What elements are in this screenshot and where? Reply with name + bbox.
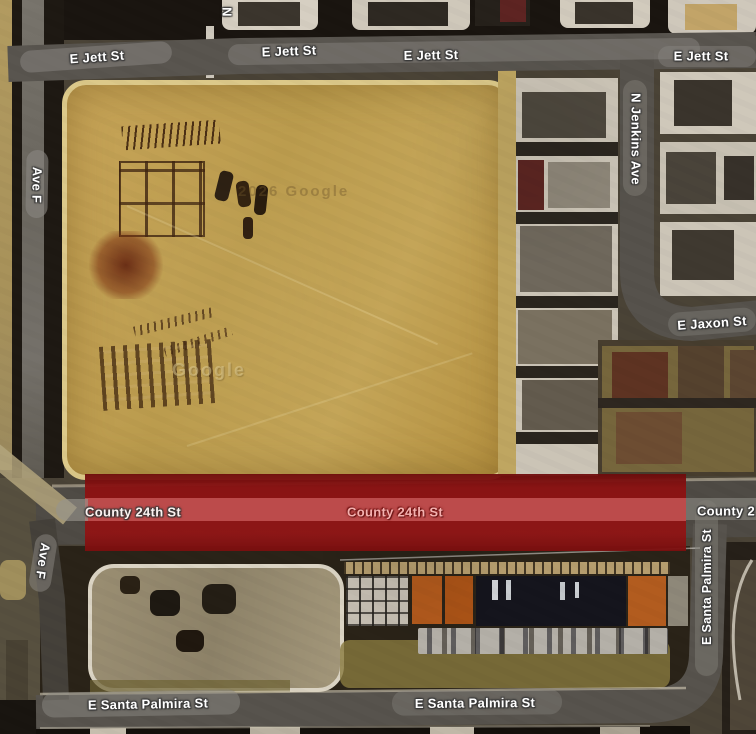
house-roof — [522, 92, 606, 138]
building-vent — [560, 582, 565, 600]
street-label-santa-palmira-v[interactable]: E Santa Palmira St — [700, 529, 714, 645]
yard-debris — [176, 630, 204, 652]
concrete-path — [206, 26, 214, 78]
house-roof — [548, 162, 610, 208]
house-roof — [520, 226, 612, 292]
street-label-county-partial[interactable]: County 2 — [697, 504, 755, 519]
building-top-strip — [344, 562, 670, 574]
house-roof — [724, 156, 754, 200]
street-label-santa-palmira-1[interactable]: E Santa Palmira St — [88, 695, 209, 712]
watermark-text: Google — [172, 360, 246, 381]
watermark-text: 2026 Google — [238, 183, 349, 200]
yard-debris — [150, 590, 180, 616]
street-label-ave-f-1[interactable]: Ave F — [29, 167, 45, 204]
building-orange-unit — [445, 576, 473, 624]
house-roof — [522, 380, 608, 430]
house-yard — [730, 560, 756, 730]
house-roof — [575, 2, 633, 24]
street-label-county-2[interactable]: County 24th St — [347, 505, 443, 520]
house-roof — [672, 230, 734, 280]
street-label-santa-palmira-2[interactable]: E Santa Palmira St — [415, 695, 535, 711]
building-vent — [575, 582, 579, 598]
lot-equipment — [243, 217, 253, 239]
house-pad — [90, 727, 126, 734]
building-grid-roof — [346, 576, 408, 626]
house-pad — [600, 727, 640, 734]
house-roof — [666, 152, 716, 204]
house-pad — [250, 727, 300, 734]
lot-stain — [89, 231, 163, 299]
ground-patch — [0, 700, 40, 734]
street-label-county-1[interactable]: County 24th St — [85, 505, 181, 520]
lot-construction-frame — [119, 161, 205, 237]
lot-gap — [516, 212, 618, 224]
lot-scatter-marks — [133, 307, 213, 336]
driveway — [598, 398, 756, 408]
lot-gap — [516, 296, 618, 308]
lot-equipment — [214, 170, 235, 202]
terrain-bottom-edge — [36, 726, 690, 734]
carport-units-row — [418, 628, 668, 654]
house-roof-tan — [685, 4, 737, 30]
county-label-ribbon-gray-left — [56, 499, 88, 521]
building-end-pad — [668, 576, 688, 626]
house-roof-maroon — [518, 160, 544, 210]
street-label-e-jett-4[interactable]: E Jett St — [674, 49, 729, 64]
house-roof-maroon — [612, 352, 668, 400]
building-orange-unit — [412, 576, 442, 624]
yard-debris — [202, 584, 236, 614]
ground-patch — [6, 640, 28, 700]
building-vent — [492, 580, 498, 600]
house-roof — [674, 80, 732, 126]
house-roof — [368, 2, 448, 26]
building-orange-unit — [628, 576, 666, 626]
lot-gap — [516, 142, 618, 156]
street-label-n-jenkins[interactable]: N Jenkins Ave — [629, 93, 644, 185]
house-roof — [616, 412, 682, 464]
yard-debris — [120, 576, 140, 594]
house-pad — [430, 727, 474, 734]
house-roof — [238, 2, 300, 26]
satellite-map-canvas[interactable]: 2026 Google Google — [0, 0, 756, 734]
house-roof — [678, 346, 724, 406]
street-label-e-jett-3[interactable]: E Jett St — [404, 47, 459, 63]
building-dark-section — [476, 576, 626, 626]
ground-patch — [0, 560, 26, 600]
building-vent — [506, 580, 511, 600]
lot-trench-marks — [121, 120, 220, 151]
house-roof-maroon — [500, 0, 526, 22]
street-label-n-partial[interactable]: N — [220, 7, 235, 17]
dirt-lot — [62, 80, 512, 480]
street-label-e-jett-2[interactable]: E Jett St — [261, 43, 316, 60]
alley-strip — [498, 66, 516, 476]
